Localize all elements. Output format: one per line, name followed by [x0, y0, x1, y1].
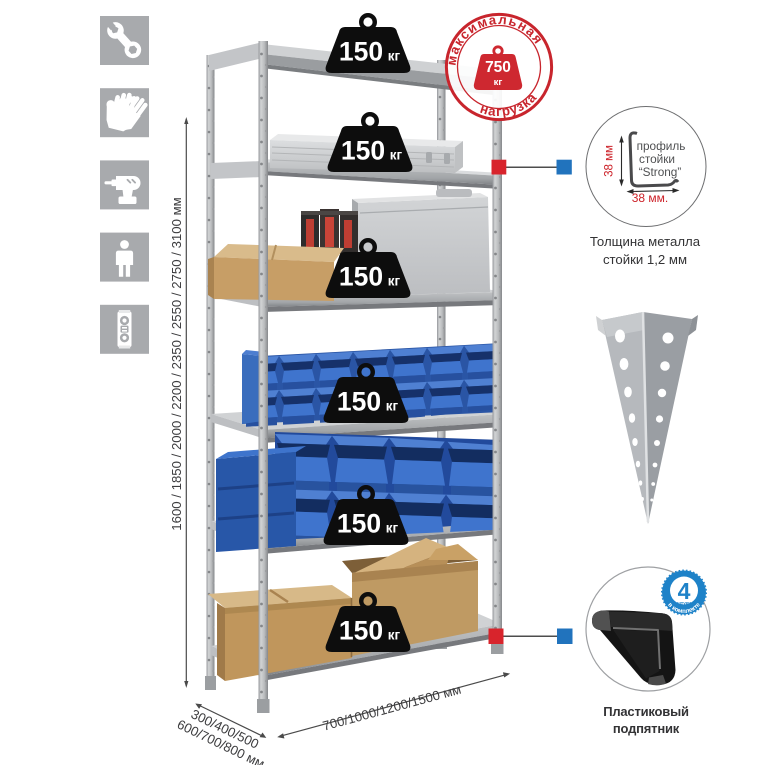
svg-text:Пластиковый: Пластиковый — [603, 704, 689, 719]
svg-text:стойки: стойки — [639, 152, 675, 166]
svg-text:150: 150 — [337, 509, 381, 539]
svg-text:38 мм.: 38 мм. — [632, 191, 669, 205]
svg-text:150: 150 — [339, 616, 383, 646]
svg-text:150: 150 — [339, 37, 383, 67]
svg-text:кг: кг — [388, 628, 401, 643]
svg-text:кг: кг — [388, 49, 401, 64]
svg-text:штуки: штуки — [677, 601, 691, 606]
svg-text:750: 750 — [485, 59, 511, 76]
svg-text:150: 150 — [341, 136, 385, 166]
svg-text:“Strong”: “Strong” — [639, 165, 682, 179]
svg-text:профиль: профиль — [637, 139, 686, 153]
svg-text:1600 / 1850 / 2000 / 2200 / 23: 1600 / 1850 / 2000 / 2200 / 2350 / 2550 … — [169, 197, 184, 530]
svg-text:кг: кг — [494, 77, 503, 88]
svg-text:кг: кг — [390, 148, 403, 163]
svg-text:кг: кг — [386, 399, 399, 414]
svg-text:стойки 1,2 мм: стойки 1,2 мм — [603, 252, 687, 267]
svg-text:150: 150 — [339, 262, 383, 292]
svg-text:подпятник: подпятник — [613, 721, 680, 736]
svg-text:38 мм: 38 мм — [604, 145, 616, 177]
svg-text:Толщина металла: Толщина металла — [590, 234, 701, 249]
svg-text:кг: кг — [388, 274, 401, 289]
svg-text:150: 150 — [337, 387, 381, 417]
svg-text:кг: кг — [386, 521, 399, 536]
